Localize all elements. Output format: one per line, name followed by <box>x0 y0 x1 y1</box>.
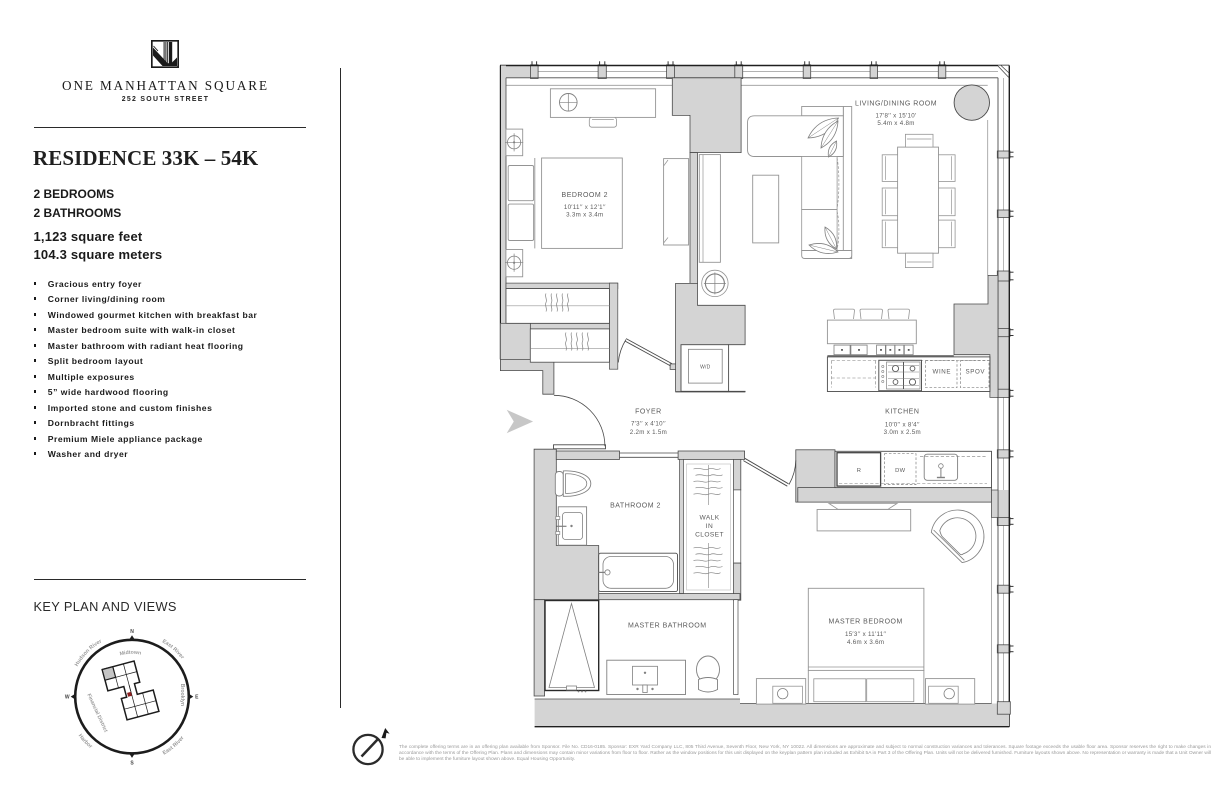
svg-text:CLOSET: CLOSET <box>695 532 724 539</box>
svg-text:FOYER: FOYER <box>635 408 662 415</box>
svg-text:LIVING/DINING ROOM: LIVING/DINING ROOM <box>855 101 937 108</box>
svg-text:BEDROOM 2: BEDROOM 2 <box>562 192 609 199</box>
svg-text:KITCHEN: KITCHEN <box>885 408 919 415</box>
svg-text:4.6m x 3.6m: 4.6m x 3.6m <box>847 639 884 646</box>
svg-text:3.0m x 2.5m: 3.0m x 2.5m <box>884 429 921 436</box>
svg-text:17′8′′ x 15′10′: 17′8′′ x 15′10′ <box>876 112 917 119</box>
svg-text:IN: IN <box>706 523 713 530</box>
svg-text:15′3′′ x 11′11′′: 15′3′′ x 11′11′′ <box>845 631 887 638</box>
svg-text:10′11′′ x 12′1′′: 10′11′′ x 12′1′′ <box>564 204 606 211</box>
svg-text:MASTER BEDROOM: MASTER BEDROOM <box>829 619 903 626</box>
svg-text:10′0′′ x 8′4′′: 10′0′′ x 8′4′′ <box>885 421 920 428</box>
svg-text:WINE: WINE <box>933 369 952 376</box>
svg-text:R: R <box>857 468 861 474</box>
svg-text:7′3′′ x 4′10′′: 7′3′′ x 4′10′′ <box>631 421 666 428</box>
svg-text:5.4m x 4.8m: 5.4m x 4.8m <box>877 120 914 127</box>
svg-text:2.2m x 1.5m: 2.2m x 1.5m <box>630 429 667 436</box>
svg-text:BATHROOM 2: BATHROOM 2 <box>610 503 661 510</box>
svg-text:3.3m x 3.4m: 3.3m x 3.4m <box>566 212 603 219</box>
svg-text:MASTER BATHROOM: MASTER BATHROOM <box>628 623 707 630</box>
svg-text:W/D: W/D <box>700 365 711 371</box>
svg-text:SPOV: SPOV <box>965 369 985 376</box>
svg-text:DW: DW <box>895 468 906 474</box>
svg-text:WALK: WALK <box>699 515 719 522</box>
